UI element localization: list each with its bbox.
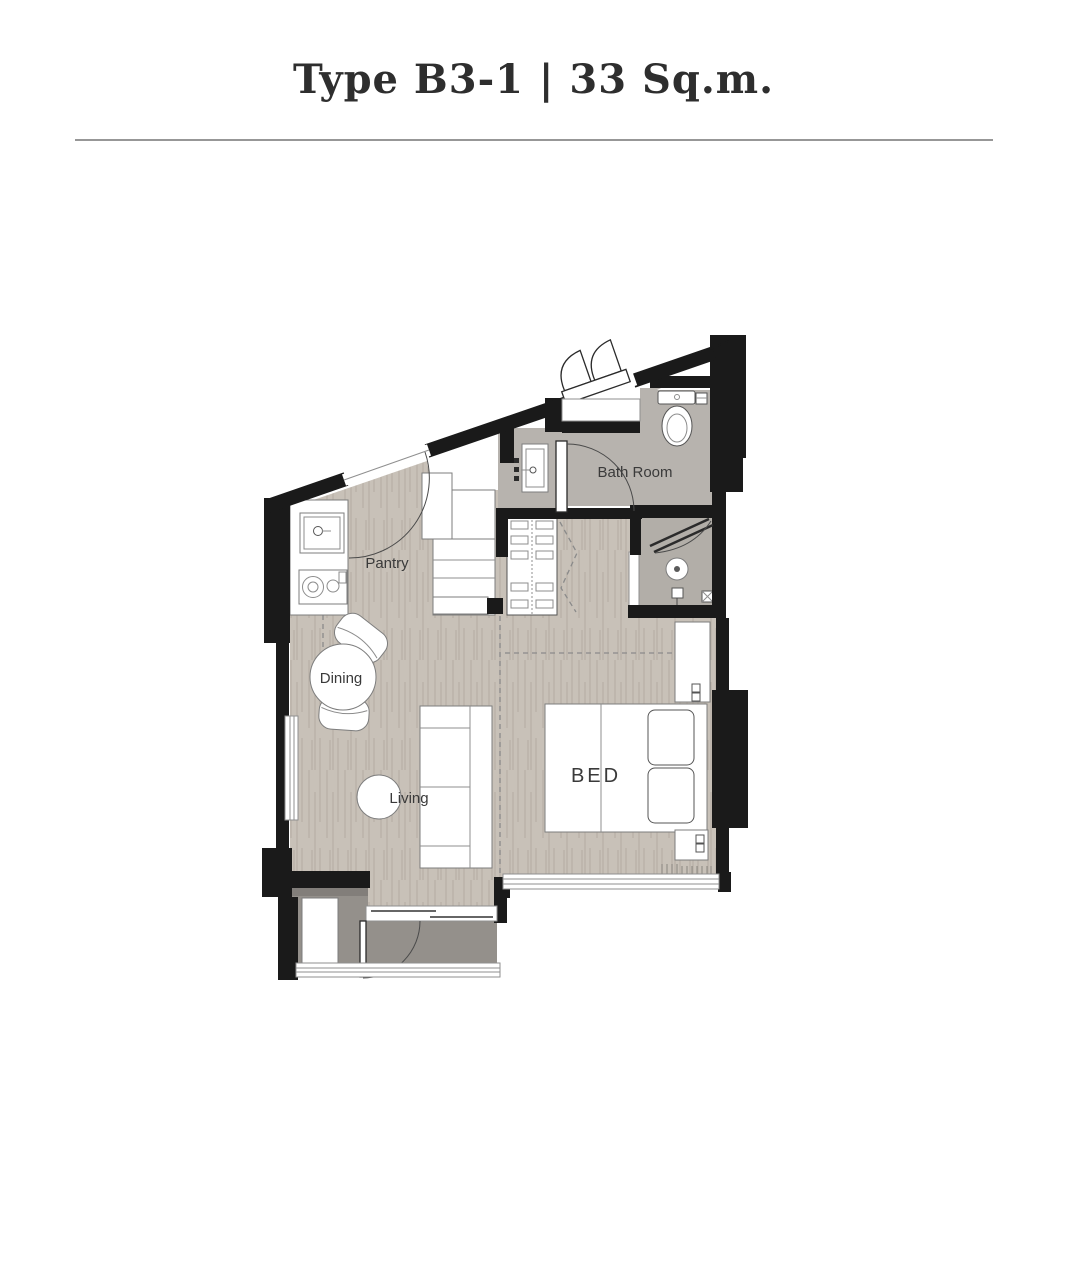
label-bathroom: Bath Room bbox=[597, 464, 672, 481]
wall-corridor-bottom bbox=[496, 508, 642, 519]
bathroom-door-leaf bbox=[556, 441, 567, 512]
wall-balcony-left bbox=[278, 897, 298, 980]
duct-box bbox=[562, 399, 640, 421]
window-bedroom-south bbox=[503, 874, 719, 889]
wall-corner-bottom-right bbox=[718, 872, 731, 892]
kitchen-counter bbox=[290, 500, 348, 615]
wall-shower-left bbox=[630, 517, 641, 555]
pillow bbox=[648, 768, 694, 823]
wall-left-top bbox=[264, 498, 290, 643]
paper-holder-icon bbox=[696, 393, 707, 404]
faucet-icon bbox=[314, 527, 323, 536]
wall-right-mid-block bbox=[710, 458, 743, 492]
label-bedroom: BED bbox=[571, 765, 621, 787]
wall-right-big-block bbox=[712, 690, 748, 828]
wall-left-bottom-block bbox=[262, 848, 292, 897]
balcony-sliding-door bbox=[366, 906, 497, 921]
wall-shower-top bbox=[630, 505, 718, 518]
wall-duct-band bbox=[562, 421, 640, 433]
label-living: Living bbox=[389, 790, 428, 807]
pillow bbox=[648, 710, 694, 765]
balcony-unit bbox=[302, 898, 338, 964]
wall-wardrobe-left-stub bbox=[496, 515, 508, 557]
shower-head-icon bbox=[672, 588, 683, 598]
wall-partition-top-stub bbox=[487, 598, 503, 614]
shower-glass-panel bbox=[629, 552, 639, 614]
entrance-double-door bbox=[551, 338, 630, 404]
label-dining: Dining bbox=[320, 670, 363, 687]
floorplan-page: Type B3-1 | 33 Sq.m. bbox=[0, 0, 1067, 1280]
sofa bbox=[420, 706, 492, 868]
wall-shower-right bbox=[712, 492, 726, 618]
label-pantry: Pantry bbox=[365, 555, 409, 572]
floor-plan: Pantry Dining Living BED Bath Room bbox=[0, 0, 1067, 1280]
upper-cabinet bbox=[422, 473, 452, 539]
wall-shower-bottom bbox=[628, 605, 720, 618]
balcony-wall-shadow bbox=[292, 888, 368, 896]
wall-balcony-top bbox=[292, 871, 370, 888]
double-bed bbox=[545, 704, 707, 832]
tv-cabinet bbox=[433, 597, 488, 614]
window-west bbox=[285, 716, 298, 820]
balcony-railing bbox=[296, 963, 500, 977]
tall-cabinet bbox=[452, 490, 495, 539]
wardrobe bbox=[507, 516, 557, 615]
wall-right-top-block bbox=[710, 335, 746, 458]
faucet-handle-icon bbox=[514, 458, 519, 463]
wall-bedroom-right bbox=[716, 618, 729, 692]
